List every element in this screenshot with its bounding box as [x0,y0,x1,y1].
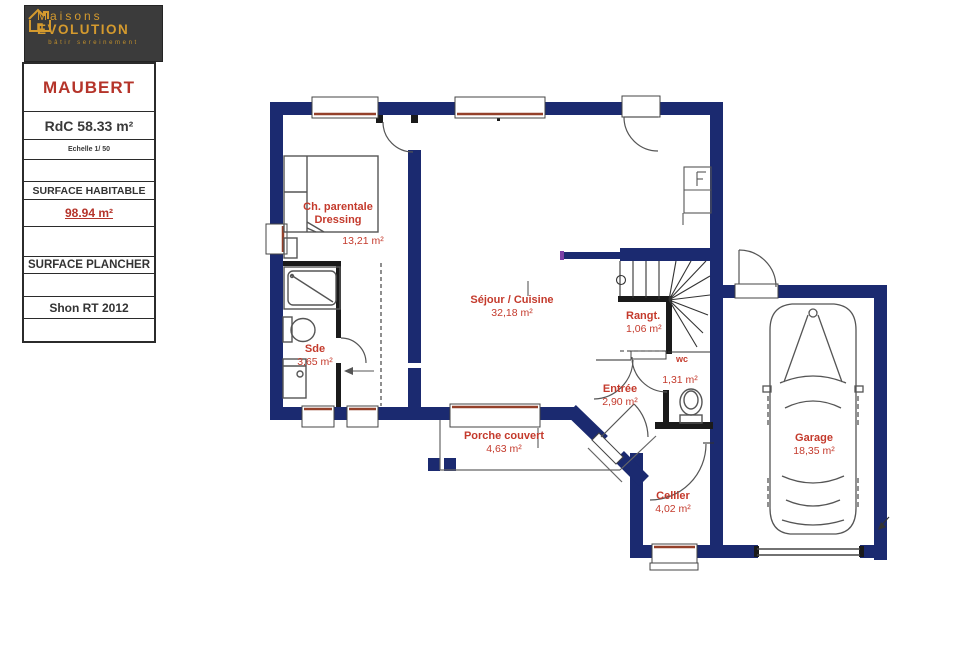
front-door-leaf [601,404,634,437]
cellier-step [650,563,698,570]
interior-partitions [283,114,864,557]
room-label-wc: wc [670,354,694,365]
room-label-garage: Garage 18,35 m² [766,432,862,457]
porch-post [428,458,440,471]
toilet-wc [680,389,702,423]
sejour-name: Séjour / Cuisine [447,294,577,307]
floor-plan-page: Maisons EVOLUTION bâtir sereinement MAUB… [0,0,960,656]
garage-side-door-swing [739,250,776,287]
rangt-name: Rangt. [626,310,688,323]
porche-name: Porche couvert [440,430,568,443]
front-door-sill [592,433,623,464]
garage-door [757,549,860,555]
room-area-wc: 1,31 m² [655,374,705,386]
toilet-sde [283,317,315,342]
car [763,304,863,534]
fridge [684,167,711,213]
shower [284,267,340,309]
sde-area: 3,65 m² [285,356,345,368]
cellier-area: 4,02 m² [628,503,718,515]
garage-area: 18,35 m² [766,445,862,457]
front-door-swing [634,404,648,437]
porch-post [444,458,456,471]
room-label-sejour: Séjour / Cuisine 32,18 m² [447,294,577,319]
room-area-bedroom: 13,21 m² [318,235,408,247]
rangt-area: 1,06 m² [626,323,688,335]
sejour-area: 32,18 m² [447,307,577,319]
room-label-entree: Entrée 2,90 m² [585,383,655,408]
door-sill-top [622,96,660,117]
room-label-cellier: Cellier 4,02 m² [628,490,718,515]
bedroom-name2: Dressing [283,214,393,227]
room-label-sde: Sde 3,65 m² [285,343,345,368]
entree-name: Entrée [585,383,655,396]
bedroom-name: Ch. parentale [283,201,393,214]
garage-side-door-sill [735,284,778,298]
cellier-name: Cellier [628,490,718,503]
entry-arrow [344,367,374,375]
back-door-swing [624,117,658,151]
exterior-walls [270,102,887,560]
bedroom-door-swing [383,122,413,152]
garage-name: Garage [766,432,862,445]
room-label-bedroom: Ch. parentale Dressing [283,201,393,227]
wc-door-sill [631,351,666,359]
room-label-porche: Porche couvert 4,63 m² [440,430,568,455]
floor-plan-drawing [0,0,960,656]
porche-area: 4,63 m² [440,443,568,455]
room-label-rangt: Rangt. 1,06 m² [626,310,688,335]
entree-area: 2,90 m² [585,396,655,408]
sde-name: Sde [285,343,345,356]
